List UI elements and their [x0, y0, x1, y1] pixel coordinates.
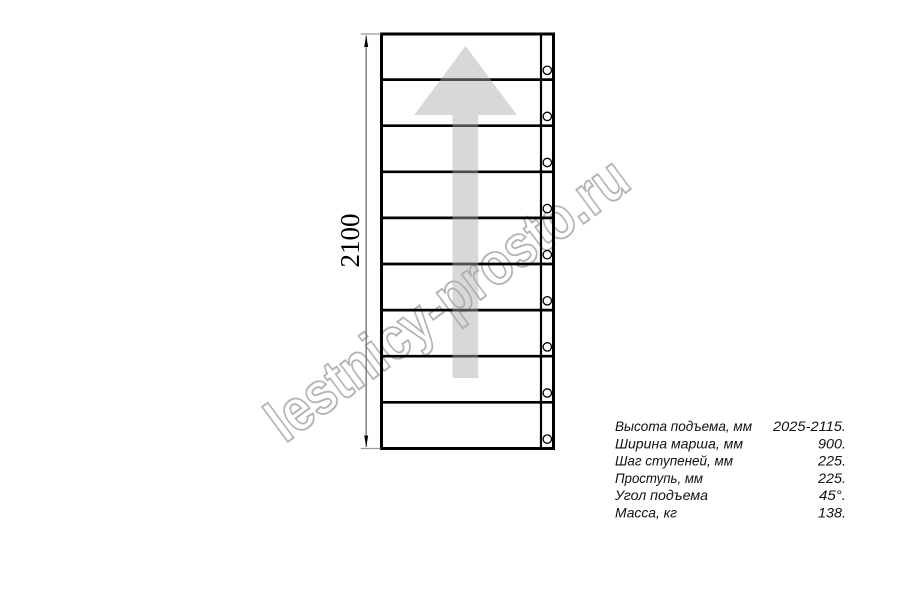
svg-text:Шаг ступеней, мм: Шаг ступеней, мм — [615, 453, 733, 469]
svg-text:225.: 225. — [817, 470, 846, 486]
svg-text:2025-2115.: 2025-2115. — [772, 418, 846, 434]
svg-text:lestnicy-prosto.ru: lestnicy-prosto.ru — [252, 143, 641, 455]
svg-text:Масса, кг: Масса, кг — [615, 505, 677, 521]
svg-text:138.: 138. — [818, 505, 846, 521]
svg-text:Угол подъема: Угол подъема — [614, 487, 708, 503]
svg-text:900.: 900. — [818, 435, 846, 451]
svg-text:Высота подъема, мм: Высота подъема, мм — [615, 418, 752, 434]
svg-text:45°.: 45°. — [819, 487, 846, 503]
svg-text:Проступь, мм: Проступь, мм — [615, 470, 703, 486]
svg-text:2100: 2100 — [335, 214, 365, 268]
svg-text:Ширина марша, мм: Ширина марша, мм — [615, 435, 743, 451]
svg-text:225.: 225. — [817, 453, 846, 469]
